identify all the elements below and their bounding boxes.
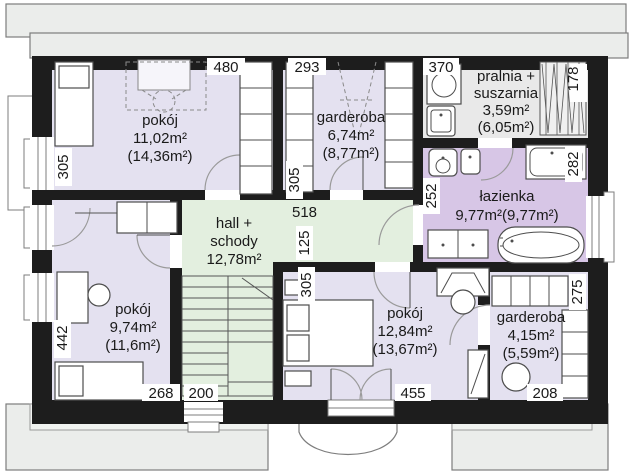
bathtub-icon <box>498 227 584 263</box>
room-area: 12,84m² <box>377 323 432 340</box>
roof-band-top-outer <box>6 4 626 37</box>
dim-pokoj3-side: 305 <box>298 272 315 297</box>
dim-lazienka-side: 252 <box>423 183 440 208</box>
chair-icon <box>502 363 530 391</box>
dim-pokoj2-bottom: 268 <box>148 385 173 402</box>
room-area-total: (5,59m²) <box>503 345 560 362</box>
room-name: pokój <box>387 305 423 322</box>
room-area: 3,59m² <box>483 102 530 119</box>
room-name: hall + <box>216 215 253 232</box>
pillow-icon <box>59 66 89 88</box>
laundry-sink-icon <box>427 106 455 136</box>
wardrobe-icon <box>492 276 568 306</box>
room-name: pokój <box>142 112 178 129</box>
room-area: 12,78m² <box>206 251 261 268</box>
toilet-icon <box>429 149 457 176</box>
window-pokoj1 <box>24 137 54 190</box>
room-name: garderoba <box>497 309 566 326</box>
dim-garderoba1-side: 305 <box>286 167 303 192</box>
wardrobe-icon <box>385 62 413 188</box>
dim-pokoj1-top: 480 <box>213 59 238 76</box>
sofa-icon <box>117 202 177 233</box>
bed-double-icon <box>283 300 373 366</box>
dim-garderoba2-side: 275 <box>569 279 586 304</box>
nightstand-icon <box>285 371 311 386</box>
desk-icon <box>57 272 88 323</box>
dim-rack-side: 178 <box>565 66 582 91</box>
dim-hall-bottom: 200 <box>188 385 213 402</box>
room-area-total: (8,77m²) <box>323 145 380 162</box>
bidet-icon <box>461 149 480 174</box>
room-area-total: (11,6m²) <box>105 337 161 354</box>
room-area-total: (14,36m²) <box>127 148 192 165</box>
dim-garderoba1-top: 293 <box>294 59 319 76</box>
wardrobe-icon <box>562 310 588 398</box>
window-pokoj2-lower <box>24 273 54 322</box>
room-name: pralnia + <box>477 68 535 85</box>
window-pokoj2-upper <box>24 205 54 250</box>
window-lazienka <box>586 192 614 262</box>
room-name: schody <box>210 233 258 250</box>
room-name: garderoba <box>317 109 386 126</box>
room-area: 9,74m² <box>110 319 157 336</box>
room-area: 4,15m² <box>508 327 555 344</box>
floor-plan-svg: 480 293 370 178 305 305 518 125 305 252 … <box>0 0 638 474</box>
room-name: pokój <box>115 301 151 318</box>
chair-icon <box>88 284 110 306</box>
dim-pralnia-top: 370 <box>428 59 453 76</box>
dim-pokoj1-side: 305 <box>55 154 72 179</box>
bed-single-icon <box>55 362 143 400</box>
window-hall <box>184 402 223 432</box>
dim-pokoj3-bottom: 455 <box>400 385 425 402</box>
dim-shower-side: 282 <box>565 151 582 176</box>
dim-hall-top: 518 <box>292 204 317 221</box>
room-area: 6,74m² <box>328 127 375 144</box>
room-name: łazienka <box>479 188 535 205</box>
roof-band-top-inner <box>30 33 628 58</box>
room-area-total: (6,05m²) <box>478 119 535 136</box>
floor-plan-page: 480 293 370 178 305 305 518 125 305 252 … <box>0 0 638 474</box>
dim-hall-side: 125 <box>296 230 313 255</box>
wardrobe-icon <box>240 62 272 194</box>
room-area-total: (13,67m²) <box>372 341 437 358</box>
dim-pokoj2-side: 442 <box>54 325 71 350</box>
mirror-icon <box>468 350 488 398</box>
room-area: 9,77m²(9,77m²) <box>455 207 558 224</box>
room-name: suszarnia <box>474 85 539 102</box>
room-area: 11,02m² <box>133 130 187 147</box>
label-pralnia: pralnia + suszarnia 3,59m² (6,05m²) <box>474 68 539 136</box>
double-washbasin-icon <box>428 230 488 258</box>
chair-icon <box>451 290 475 314</box>
dim-garderoba2-bottom: 208 <box>532 385 557 402</box>
